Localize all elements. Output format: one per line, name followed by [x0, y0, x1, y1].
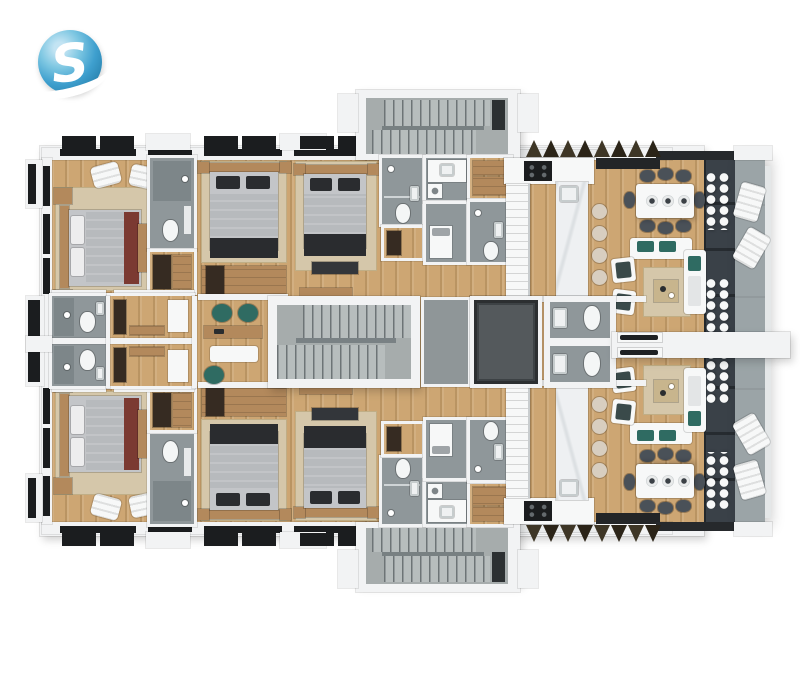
- hall-bench: [210, 346, 258, 362]
- master-bed-headboard-mirror: [60, 394, 69, 476]
- kitchen-island-sink-mirror: [560, 480, 578, 496]
- study-desk-items: [214, 329, 224, 334]
- bedroom-a3-blanket-mirror: [304, 426, 366, 448]
- kitchen-window-counter-mirror: [596, 513, 660, 524]
- dining-chair-s1-mirror: [640, 450, 655, 462]
- bar-stool-1-mirror: [592, 463, 607, 478]
- bedroom-a2-wardrobe-mirror: [206, 388, 224, 416]
- shower-head-a2-mirror: [388, 510, 394, 516]
- balcony-lounge-chair-2-mirror: [732, 412, 772, 456]
- stair-flight-upper: [303, 305, 411, 338]
- sofa-cushion-1-mirror: [637, 430, 654, 441]
- stairwell-north-door-mirror: [492, 552, 505, 582]
- bedroom-a2-nightstand-2-mirror: [280, 509, 291, 520]
- sink-a2-mirror: [410, 481, 419, 496]
- dining-plate-1-mirror: [646, 475, 658, 487]
- dining-chair-n3-mirror: [676, 500, 691, 512]
- master-bed-throw-mirror: [124, 398, 139, 470]
- window-bedroom2-north-mirror: [204, 526, 282, 533]
- curtain-north-mirror: [704, 452, 731, 510]
- closet-a1-wardrobe-mirror: [153, 393, 171, 427]
- dining-chair-n2-mirror: [658, 502, 673, 514]
- bar-stool-4-mirror: [592, 397, 607, 412]
- powder-south-toilet: [584, 352, 600, 376]
- toilet-b1-mirror: [484, 422, 498, 440]
- bedroom-a3-pillow-1-mirror: [310, 491, 332, 504]
- dressing-wardrobe-mirror: [114, 348, 126, 382]
- bar-stool-2-mirror: [592, 441, 607, 456]
- shower-head-a1-mirror: [182, 500, 188, 506]
- balcony-corner-block-ne-mirror: [734, 522, 772, 536]
- hall-accent-chair: [204, 366, 224, 384]
- washing-machine-mirror: [428, 484, 442, 498]
- dining-plate-2-mirror: [662, 475, 674, 487]
- ledge-west-1-face-mirror: [28, 478, 36, 518]
- laundry-sink-mirror: [440, 506, 454, 518]
- closet-a2-wardrobe-mirror: [387, 427, 401, 451]
- kitchen-tall-cabinets-mirror: [506, 384, 530, 498]
- toilet-a1-mirror: [163, 441, 178, 462]
- stairwell-north-ledge-right-mirror: [518, 550, 538, 588]
- hedge-triangle-8-mirror: [645, 525, 661, 542]
- awning-bed2-2-mirror: [242, 533, 276, 546]
- dining-plate-3-mirror: [678, 475, 690, 487]
- hedge-triangle-6-mirror: [611, 525, 627, 542]
- bedroom-a2-duvet-mirror: [210, 444, 278, 488]
- hedge-triangle-4-mirror: [577, 525, 593, 542]
- west-divider-protrusion: [26, 336, 52, 352]
- balcony-lounge-chair-1-mirror: [733, 459, 767, 500]
- stairwell-north-rail-mirror: [382, 552, 484, 556]
- master-dresser-mirror: [138, 410, 148, 458]
- bedroom-a2-pillow-2-mirror: [246, 493, 270, 506]
- chaise-seat-mirror: [688, 376, 701, 406]
- dining-chair-s3-mirror: [676, 450, 691, 462]
- closet-b-cabinet-2-mirror: [473, 487, 507, 505]
- wall-bath-dressing: [106, 296, 110, 388]
- window-west-1-mirror: [43, 476, 50, 516]
- hall-console-north-top: [620, 335, 658, 340]
- awning-bed3-1-mirror: [300, 533, 334, 546]
- closet-a1-shelves-mirror: [173, 393, 191, 427]
- study-desk: [204, 326, 262, 338]
- stair-flight-lower: [277, 345, 385, 379]
- bedroom-a2-headboard-mirror: [208, 510, 280, 519]
- entry-shower-head-mirror: [64, 364, 70, 370]
- window-west-3-mirror: [43, 388, 50, 424]
- bedroom-a2-nightstand-1-mirror: [198, 509, 209, 520]
- coffee-table-decor-dark-mirror: [660, 390, 666, 396]
- bedroom-a3-headboard-mirror: [302, 508, 368, 517]
- master-pillow-1-mirror: [71, 438, 84, 466]
- study-chair-2: [238, 304, 258, 322]
- toilet-a2-mirror: [396, 459, 410, 478]
- bathroom-a1-shelf-mirror: [184, 448, 191, 476]
- elevator-shaft: [477, 303, 535, 381]
- shower-head-b1-mirror: [475, 466, 481, 472]
- hall-console-south-top: [620, 350, 658, 355]
- hedge-triangle-1-mirror: [526, 525, 542, 542]
- window-west-2-mirror: [43, 428, 50, 468]
- dining-chair-n1-mirror: [640, 500, 655, 512]
- bedroom-a3-nightstand-1-mirror: [294, 507, 305, 518]
- sofa-cushion-2-mirror: [659, 430, 676, 441]
- wall-entry-divider: [52, 338, 192, 344]
- powder-south-sink: [553, 354, 567, 374]
- bedroom-a3-duvet-mirror: [304, 448, 366, 488]
- wall-dressing-hall: [192, 296, 197, 388]
- stairwell-north-flight-lower-mirror: [372, 528, 476, 552]
- master-pillow-2-mirror: [71, 406, 84, 434]
- corridor-wall-west-1-mirror: [52, 385, 106, 392]
- closet-b-cabinet-1-mirror: [473, 507, 507, 521]
- stairwell-north-ledge-left-mirror: [338, 550, 358, 588]
- entry-toilet-mirror: [80, 350, 95, 370]
- utility-daybed-pillow-mirror: [432, 446, 450, 454]
- dressing-cabinet-mirror: [130, 347, 164, 356]
- stair-center-rail: [296, 338, 396, 343]
- living-armchair-1-mirror: [611, 399, 636, 425]
- bedroom-a3-nightstand-2-mirror: [368, 507, 379, 518]
- corner-wall-dark-ne-mirror: [656, 522, 734, 531]
- bedroom-a3-bench-mirror: [312, 408, 358, 420]
- hedge-triangle-7-mirror: [628, 525, 644, 542]
- hedge-triangle-5-mirror: [594, 525, 610, 542]
- bedroom-a2-pillow-1-mirror: [216, 493, 240, 506]
- powder-north-toilet: [584, 306, 600, 330]
- master-nightstand-1-mirror: [54, 478, 72, 494]
- dressing-bench-mirror: [168, 350, 188, 382]
- coffee-table-decor-white-mirror: [669, 384, 674, 389]
- chaise-pillow-mirror: [688, 411, 701, 426]
- entry-sink-mirror: [96, 367, 104, 380]
- ledge-bath1-mirror: [146, 532, 190, 548]
- bar-stool-3-mirror: [592, 419, 607, 434]
- hedge-triangle-3-mirror: [560, 525, 576, 542]
- hedge-triangle-2-mirror: [543, 525, 559, 542]
- sink-b1-mirror: [494, 444, 503, 460]
- study-chair-1: [212, 304, 232, 322]
- armchair-1-cushion-mirror: [615, 403, 632, 420]
- kitchen-stove-mirror: [524, 501, 552, 521]
- dining-chair-s2-mirror: [658, 448, 673, 460]
- awning-bed2-1-mirror: [204, 533, 238, 546]
- awning-master-1-mirror: [62, 533, 96, 546]
- corridor-wall-west-2-mirror: [114, 385, 194, 392]
- master-armchair-1-mirror: [90, 493, 123, 521]
- bedroom-a3-pillow-2-mirror: [338, 491, 360, 504]
- window-master-north-mirror: [60, 526, 136, 533]
- living-coffee-table-mirror: [654, 380, 678, 402]
- awning-master-2-mirror: [100, 533, 134, 546]
- floor-plan-canvas: S: [0, 0, 800, 686]
- elevator-lobby: [424, 300, 468, 384]
- powder-north-sink: [553, 308, 567, 328]
- bedroom-a2-blanket-mirror: [210, 424, 278, 444]
- dining-chair-w-mirror: [624, 474, 635, 490]
- stairwell-north-flight-upper-mirror: [384, 556, 490, 582]
